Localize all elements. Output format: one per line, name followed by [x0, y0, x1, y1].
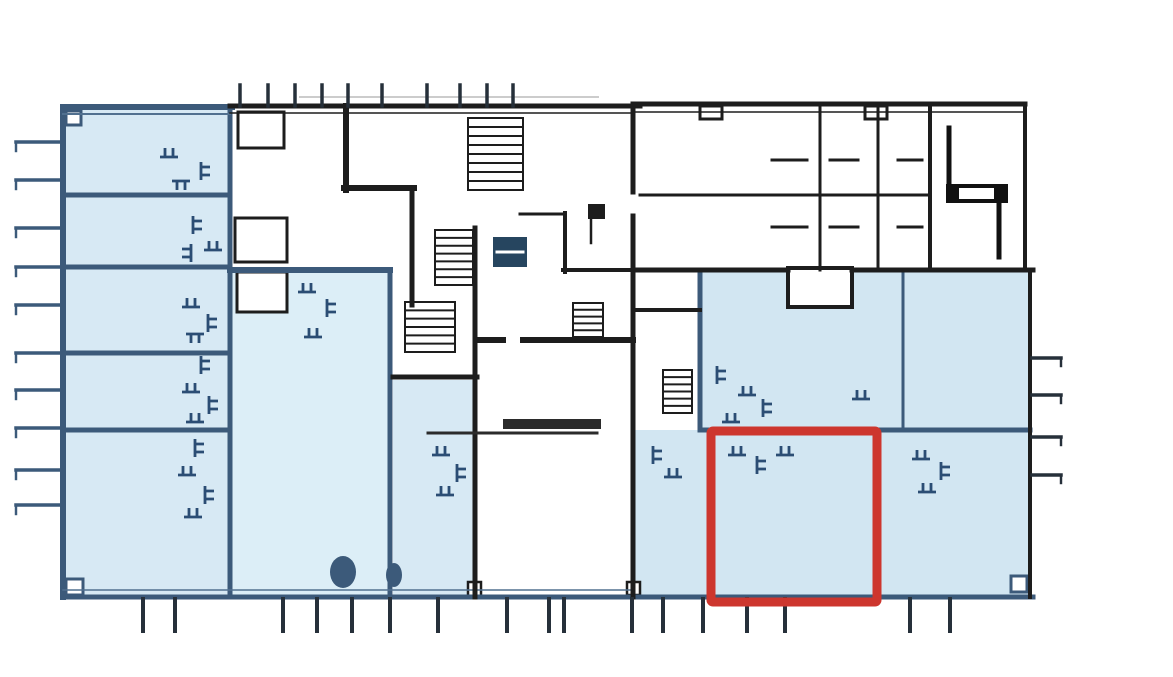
- small-room: [235, 218, 287, 262]
- plan-blob: [330, 556, 356, 588]
- plan-blob: [386, 563, 402, 587]
- central-room: [230, 270, 390, 597]
- mid-room: [393, 380, 475, 597]
- right-wing-lower: [633, 430, 1030, 597]
- floor-plan-svg: [0, 0, 1173, 677]
- small-room: [237, 272, 287, 312]
- alcove: [788, 268, 852, 307]
- shaft-box: [588, 204, 605, 219]
- floor-plan-page: [0, 0, 1173, 677]
- corner-post: [66, 579, 83, 595]
- entrance-symbol-bar-inner: [959, 188, 994, 199]
- small-room: [238, 112, 284, 148]
- counter: [503, 419, 601, 429]
- corner-post: [1011, 576, 1027, 592]
- right-wing-upper: [700, 270, 1030, 430]
- staircase: [573, 303, 603, 337]
